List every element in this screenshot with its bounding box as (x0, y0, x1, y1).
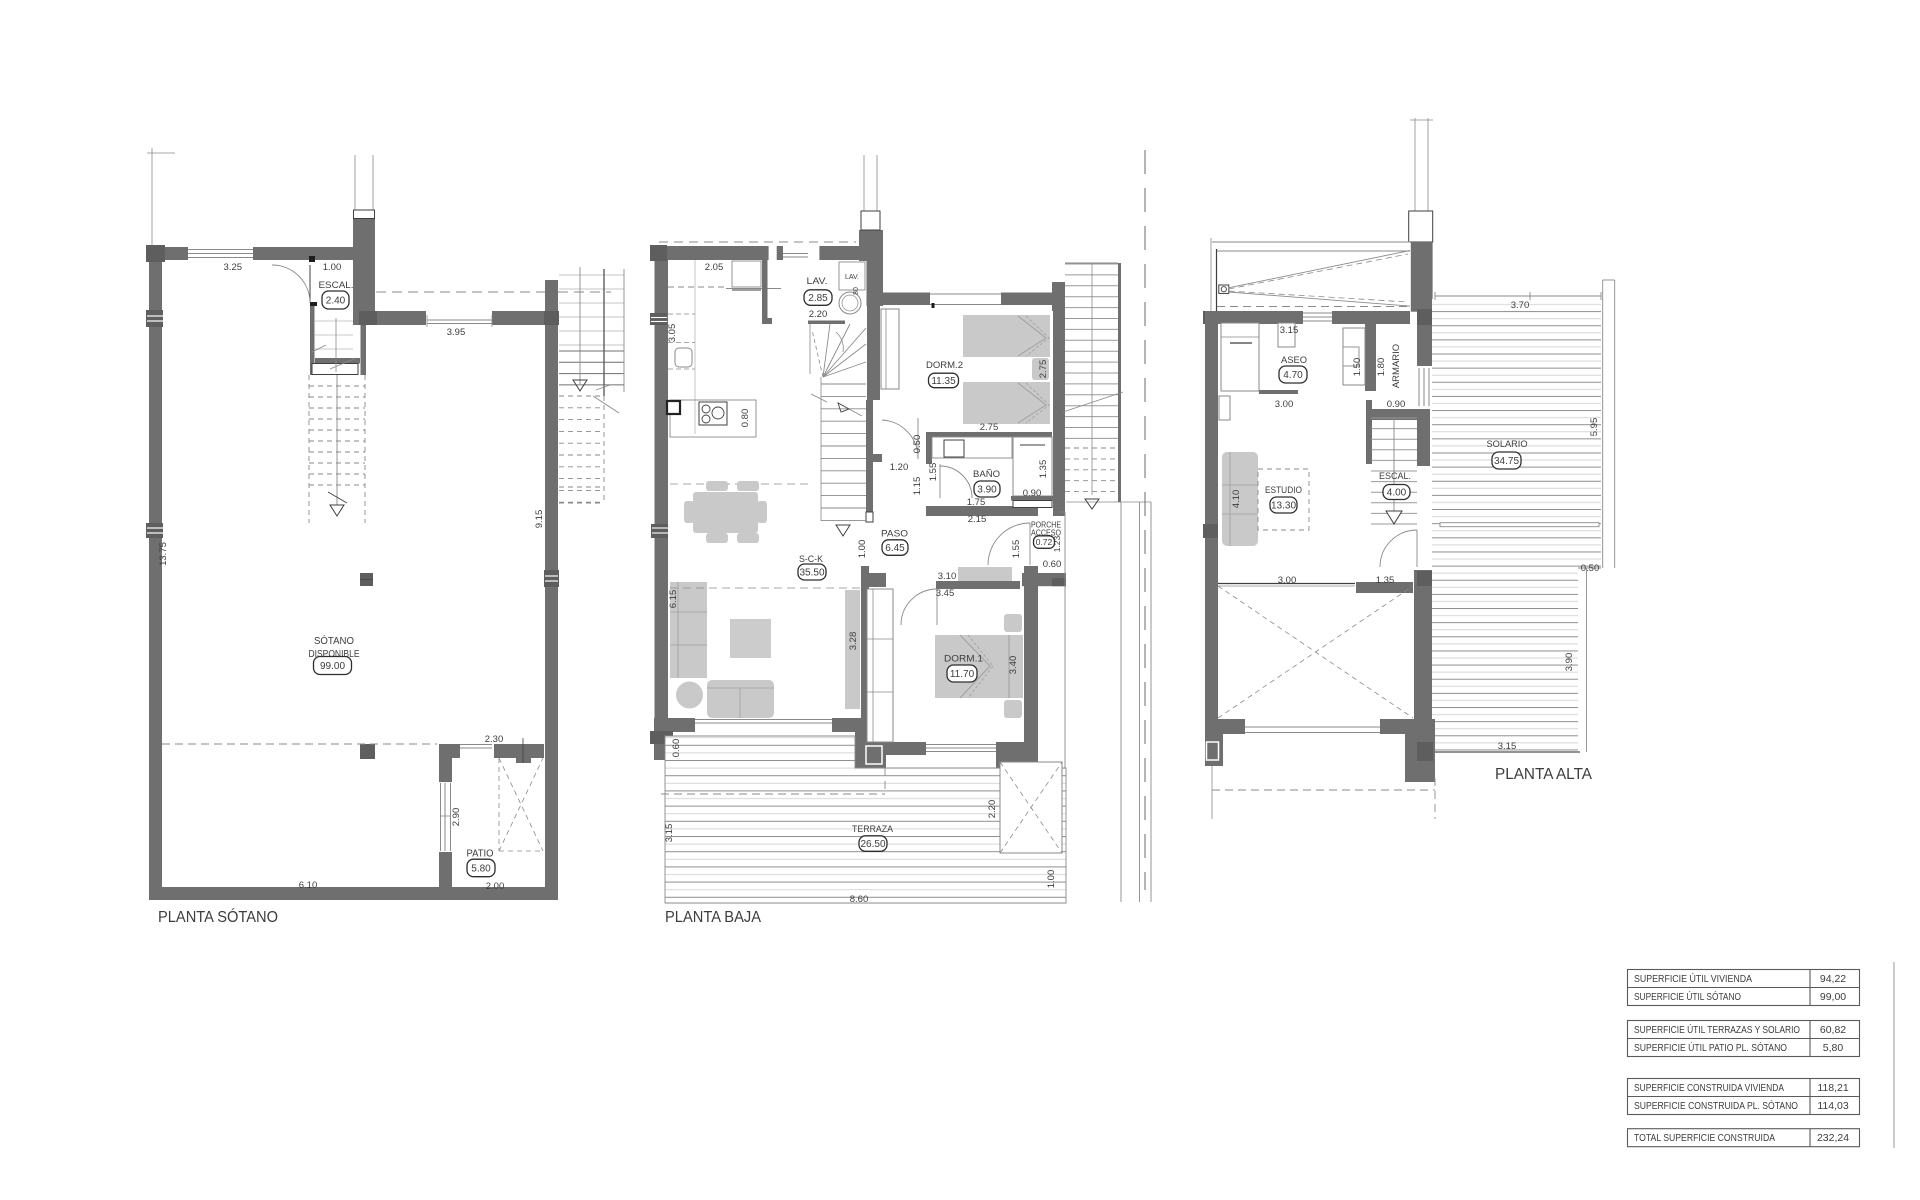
svg-text:11.70: 11.70 (950, 669, 975, 680)
svg-text:3.05: 3.05 (667, 324, 678, 343)
svg-text:3.15: 3.15 (1498, 741, 1517, 752)
svg-text:1.00: 1.00 (323, 262, 342, 273)
svg-text:3.90: 3.90 (1564, 653, 1575, 672)
svg-text:0.60: 0.60 (1043, 559, 1062, 570)
svg-text:3.00: 3.00 (1275, 399, 1294, 410)
svg-text:2.05: 2.05 (705, 262, 724, 273)
svg-text:TOTAL SUPERFICIE CONSTRUIDA: TOTAL SUPERFICIE CONSTRUIDA (1634, 1132, 1775, 1144)
svg-text:0.90: 0.90 (1023, 488, 1042, 499)
svg-text:13.30: 13.30 (1271, 500, 1296, 511)
svg-text:6.10: 6.10 (299, 880, 318, 891)
svg-text:1.75: 1.75 (967, 497, 986, 508)
svg-text:1.55: 1.55 (928, 463, 939, 482)
svg-text:ASEO: ASEO (1281, 355, 1307, 366)
svg-text:SOLARIO: SOLARIO (1487, 439, 1528, 450)
svg-text:2.75: 2.75 (1038, 360, 1049, 379)
svg-text:1.15: 1.15 (912, 477, 923, 496)
svg-text:PATIO: PATIO (467, 848, 494, 860)
svg-text:1.00: 1.00 (1046, 870, 1057, 889)
svg-text:26.50: 26.50 (860, 839, 885, 850)
svg-text:0.90: 0.90 (1387, 399, 1406, 410)
svg-text:TERRAZA: TERRAZA (852, 824, 894, 835)
svg-text:80: 80 (853, 287, 860, 295)
svg-text:PLANTA BAJA: PLANTA BAJA (665, 909, 762, 926)
svg-text:5.80: 5.80 (471, 863, 491, 874)
svg-text:2.90: 2.90 (451, 808, 462, 827)
svg-text:2.15: 2.15 (968, 514, 987, 525)
svg-text:SUPERFICIE ÚTIL TERRAZAS Y SOL: SUPERFICIE ÚTIL TERRAZAS Y SOLARIO (1634, 1023, 1800, 1036)
svg-text:2.85: 2.85 (808, 293, 828, 304)
svg-text:SÓTANO: SÓTANO (314, 634, 354, 647)
svg-text:2.30: 2.30 (485, 734, 504, 745)
svg-text:LAV.: LAV. (845, 274, 859, 281)
svg-text:35.50: 35.50 (799, 567, 824, 578)
svg-text:0.80: 0.80 (740, 409, 751, 428)
svg-text:8.60: 8.60 (850, 894, 869, 905)
svg-text:3.15: 3.15 (664, 824, 675, 843)
svg-text:5.95: 5.95 (1589, 418, 1600, 437)
svg-text:2.00: 2.00 (486, 881, 505, 892)
svg-text:99.00: 99.00 (320, 661, 345, 672)
svg-text:114,03: 114,03 (1817, 1100, 1848, 1112)
svg-text:3.15: 3.15 (1280, 325, 1299, 336)
svg-text:SUPERFICIE CONSTRUIDA PL. SÓTA: SUPERFICIE CONSTRUIDA PL. SÓTANO (1634, 1099, 1798, 1112)
svg-text:ESCAL.: ESCAL. (1379, 471, 1411, 482)
svg-text:3.40: 3.40 (1008, 656, 1019, 675)
svg-text:5,80: 5,80 (1823, 1042, 1844, 1054)
svg-text:SUPERFICIE ÚTIL VIVIENDA: SUPERFICIE ÚTIL VIVIENDA (1634, 972, 1752, 985)
svg-text:PLANTA SÓTANO: PLANTA SÓTANO (158, 909, 278, 926)
svg-text:ESCAL.: ESCAL. (319, 280, 354, 291)
svg-text:4.10: 4.10 (1231, 490, 1242, 509)
svg-text:34.75: 34.75 (1494, 456, 1519, 467)
svg-text:60,82: 60,82 (1820, 1024, 1846, 1036)
svg-text:ESTUDIO: ESTUDIO (1265, 485, 1302, 496)
svg-text:1.00: 1.00 (857, 540, 868, 559)
svg-text:6.45: 6.45 (885, 543, 905, 554)
svg-text:3.90: 3.90 (977, 484, 997, 495)
svg-text:0.50: 0.50 (912, 435, 923, 454)
svg-text:3.10: 3.10 (938, 571, 957, 582)
svg-text:4.00: 4.00 (1387, 487, 1407, 498)
svg-text:6.15: 6.15 (668, 590, 679, 609)
svg-text:1.55: 1.55 (1011, 540, 1022, 559)
svg-text:3.00: 3.00 (1278, 575, 1297, 586)
svg-text:1.20: 1.20 (890, 462, 909, 473)
svg-text:LAV.: LAV. (807, 276, 828, 287)
svg-text:BAÑO: BAÑO (973, 469, 1000, 480)
svg-text:3.28: 3.28 (848, 632, 859, 651)
svg-text:1.50: 1.50 (1352, 358, 1363, 377)
svg-text:DORM.1: DORM.1 (944, 654, 983, 665)
svg-text:118,21: 118,21 (1817, 1082, 1848, 1094)
svg-text:11.35: 11.35 (931, 376, 956, 387)
svg-text:PASO: PASO (881, 529, 908, 540)
svg-text:9.15: 9.15 (534, 510, 545, 529)
svg-text:SUPERFICIE CONSTRUIDA VIVIENDA: SUPERFICIE CONSTRUIDA VIVIENDA (1634, 1082, 1784, 1094)
svg-text:ARMARIO: ARMARIO (1391, 344, 1402, 388)
svg-text:99,00: 99,00 (1820, 991, 1846, 1003)
svg-text:3.25: 3.25 (224, 262, 243, 273)
svg-text:2.20: 2.20 (809, 309, 828, 320)
svg-text:2.40: 2.40 (326, 295, 346, 306)
svg-text:4.70: 4.70 (1283, 370, 1303, 381)
svg-text:SUPERFICIE ÚTIL PATIO PL. SÓTA: SUPERFICIE ÚTIL PATIO PL. SÓTANO (1634, 1041, 1787, 1054)
svg-text:1.80: 1.80 (1376, 358, 1387, 377)
svg-text:0.50: 0.50 (1581, 563, 1600, 574)
svg-text:232,24: 232,24 (1817, 1132, 1849, 1144)
svg-text:0.72: 0.72 (1036, 537, 1053, 547)
svg-text:3.45: 3.45 (936, 588, 955, 599)
svg-text:94,22: 94,22 (1820, 973, 1846, 985)
svg-text:1.23: 1.23 (1052, 535, 1062, 552)
svg-text:DORM.2: DORM.2 (926, 360, 963, 371)
svg-text:SUPERFICIE ÚTIL SÓTANO: SUPERFICIE ÚTIL SÓTANO (1634, 990, 1741, 1003)
svg-text:2.75: 2.75 (980, 422, 999, 433)
svg-text:2.20: 2.20 (987, 800, 998, 819)
svg-text:1.35: 1.35 (1038, 460, 1049, 479)
svg-text:0.60: 0.60 (671, 739, 682, 758)
svg-text:3.70: 3.70 (1511, 300, 1530, 311)
svg-text:3.95: 3.95 (447, 327, 466, 338)
svg-text:1.35: 1.35 (1376, 575, 1395, 586)
svg-text:13.75: 13.75 (158, 542, 169, 566)
svg-text:PLANTA ALTA: PLANTA ALTA (1495, 766, 1593, 783)
